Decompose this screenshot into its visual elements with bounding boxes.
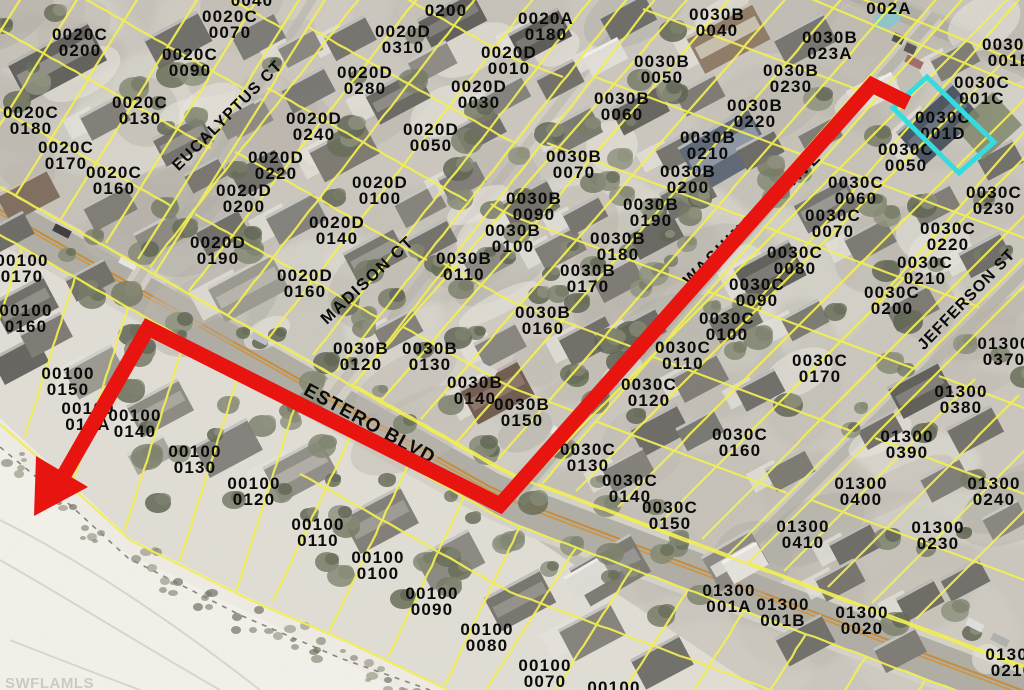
svg-text:0020C0070: 0020C0070 [202,7,258,42]
svg-text:0020D0280: 0020D0280 [337,63,393,98]
svg-text:0030B0090: 0030B0090 [506,189,562,224]
svg-text:0030B0100: 0030B0100 [485,221,541,256]
svg-text:001000110: 001000110 [291,515,344,550]
svg-text:0030C001E: 0030C001E [982,35,1024,70]
svg-text:0020D0240: 0020D0240 [286,109,342,144]
svg-text:013000240: 013000240 [967,474,1020,509]
svg-text:0030C0090: 0030C0090 [729,275,785,310]
svg-text:0030B0180: 0030B0180 [590,229,646,264]
svg-text:013000410: 013000410 [776,517,829,552]
svg-text:0030C0060: 0030C0060 [828,173,884,208]
svg-text:SWFLAMLS: SWFLAMLS [5,675,94,690]
svg-text:0030B0110: 0030B0110 [436,249,492,284]
svg-text:0030B0170: 0030B0170 [560,261,616,296]
svg-text:001000170: 001000170 [0,251,49,286]
svg-text:002A: 002A [866,0,911,18]
svg-text:0020D0100: 0020D0100 [352,173,408,208]
svg-text:001000090: 001000090 [405,584,458,619]
svg-text:0030B0040: 0030B0040 [689,5,745,40]
svg-text:013000400: 013000400 [834,474,887,509]
svg-text:0020C0200: 0020C0200 [52,25,108,60]
svg-text:0030B0230: 0030B0230 [763,61,819,96]
svg-text:0030C0110: 0030C0110 [655,338,711,373]
svg-text:0020C0180: 0020C0180 [3,103,59,138]
svg-text:001000130: 001000130 [168,442,221,477]
svg-text:013000230: 013000230 [911,518,964,553]
svg-text:0020D0050: 0020D0050 [403,120,459,155]
svg-text:0030B0190: 0030B0190 [623,195,679,230]
svg-text:0030B0070: 0030B0070 [546,147,602,182]
svg-text:01300001B: 01300001B [756,595,809,630]
svg-text:013000380: 013000380 [934,382,987,417]
svg-text:0200: 0200 [425,1,468,20]
svg-text:0030B0050: 0030B0050 [634,52,690,87]
svg-text:0030C0080: 0030C0080 [767,243,823,278]
svg-text:0020D0160: 0020D0160 [277,266,333,301]
svg-text:001000100: 001000100 [351,548,404,583]
svg-text:0030C0230: 0030C0230 [966,183,1022,218]
svg-text:0030B0130: 0030B0130 [402,339,458,374]
svg-text:0030C0170: 0030C0170 [792,351,848,386]
svg-text:0030B023A: 0030B023A [802,28,858,63]
svg-text:0030C0160: 0030C0160 [712,425,768,460]
svg-text:0020D0200: 0020D0200 [216,181,272,216]
svg-text:0030C0130: 0030C0130 [560,440,616,475]
svg-text:0030B0120: 0030B0120 [333,339,389,374]
svg-text:0020A0180: 0020A0180 [518,9,574,44]
svg-text:0020D0140: 0020D0140 [309,213,365,248]
svg-text:0030B0220: 0030B0220 [727,96,783,131]
svg-text:001000070: 001000070 [518,656,571,690]
svg-text:01300001A: 01300001A [702,581,755,616]
svg-text:013000370: 013000370 [977,334,1024,369]
svg-text:001000120: 001000120 [227,474,280,509]
svg-text:013000020: 013000020 [835,603,888,638]
svg-text:0020C0130: 0020C0130 [112,93,168,128]
svg-text:00100: 00100 [587,678,640,690]
svg-text:001000150: 001000150 [41,364,94,399]
svg-text:013000390: 013000390 [880,427,933,462]
svg-text:001000160: 001000160 [0,301,53,336]
svg-text:0020D0190: 0020D0190 [190,233,246,268]
svg-text:0030C0150: 0030C0150 [642,498,698,533]
svg-text:0030C0220: 0030C0220 [920,219,976,254]
svg-text:001000080: 001000080 [460,620,513,655]
svg-text:0020C0090: 0020C0090 [162,45,218,80]
svg-text:0020C0160: 0020C0160 [86,163,142,198]
svg-text:0030C0050: 0030C0050 [878,140,934,175]
svg-text:0030B0210: 0030B0210 [680,128,736,163]
svg-text:013000210: 013000210 [985,645,1024,680]
svg-text:0030C0120: 0030C0120 [621,375,677,410]
svg-text:0030B0160: 0030B0160 [515,303,571,338]
svg-text:0030C0200: 0030C0200 [864,283,920,318]
svg-text:0020D0010: 0020D0010 [481,43,537,78]
svg-text:0020D0220: 0020D0220 [248,148,304,183]
svg-text:0030B0150: 0030B0150 [494,395,550,430]
svg-text:0030C001C: 0030C001C [954,73,1010,108]
svg-text:0020D0030: 0020D0030 [451,77,507,112]
svg-text:0020D0310: 0020D0310 [375,22,431,57]
svg-text:0030B0200: 0030B0200 [660,162,716,197]
svg-text:0030B0060: 0030B0060 [594,89,650,124]
svg-text:0030C0070: 0030C0070 [805,206,861,241]
svg-text:001000140: 001000140 [108,406,161,441]
